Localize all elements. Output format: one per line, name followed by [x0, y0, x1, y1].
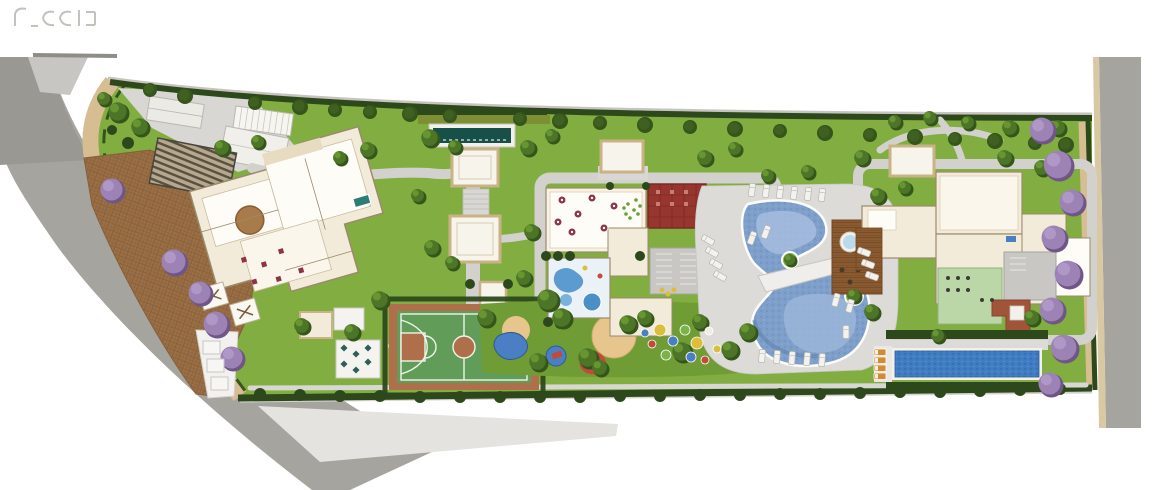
lounger: [803, 352, 810, 365]
tree-highlight: [802, 166, 808, 172]
shrub: [854, 387, 866, 399]
pergola-3: [601, 141, 643, 172]
tree-highlight: [449, 141, 455, 147]
tree-highlight: [872, 189, 879, 196]
tree-highlight: [639, 311, 646, 318]
tree-highlight: [423, 130, 431, 138]
boundary-tree: [684, 121, 694, 131]
chair-dot: [622, 206, 626, 210]
shrub: [654, 390, 666, 402]
round-table: [577, 213, 579, 215]
boundary-tree: [864, 129, 874, 139]
tree-highlight: [426, 241, 433, 248]
tree-highlight: [373, 292, 381, 300]
boundary-tree: [364, 106, 374, 116]
boundary-tree: [553, 114, 564, 125]
pergola-5: [480, 282, 506, 306]
shrub: [814, 388, 826, 400]
boundary-tree: [949, 133, 959, 143]
play-element: [654, 324, 666, 336]
shrub: [254, 388, 266, 400]
tree-highlight: [621, 316, 629, 324]
boundary-tree: [638, 118, 649, 129]
tree-highlight: [479, 310, 487, 318]
tree-highlight: [216, 141, 223, 148]
boundary-tree: [514, 113, 524, 123]
tree-highlight: [334, 152, 340, 158]
tree-highlight: [446, 257, 452, 263]
shrub: [294, 389, 306, 401]
shrub: [465, 279, 475, 289]
tree-highlight: [526, 225, 533, 232]
lounger: [818, 353, 825, 366]
tree-highlight: [522, 141, 529, 148]
shrub: [374, 390, 386, 402]
shrub: [774, 388, 786, 400]
parking-bay: [207, 359, 224, 372]
round-table: [603, 227, 605, 229]
play-element: [686, 352, 696, 362]
boundary-tree: [988, 134, 999, 145]
shrub: [974, 385, 986, 397]
service-block: [1004, 252, 1056, 300]
play-element: [648, 340, 656, 348]
purple-tree-highlight: [164, 252, 176, 264]
boundary-tree: [403, 107, 414, 118]
tree-highlight: [899, 182, 905, 188]
chair-dot: [638, 204, 642, 208]
lounger: [773, 350, 780, 363]
shrub: [503, 279, 513, 289]
chair-dot: [626, 202, 630, 206]
round-table: [561, 199, 563, 201]
street-sidewalk: [258, 406, 618, 462]
boundary-tree: [444, 110, 454, 120]
tree-highlight: [110, 104, 119, 113]
chair-dot: [636, 212, 640, 216]
purple-tree-highlight: [1058, 263, 1071, 276]
tree-highlight: [98, 93, 104, 99]
lap-pool: [895, 351, 1039, 377]
parking-bay: [211, 377, 228, 390]
purple-tree-highlight: [103, 180, 114, 191]
shrub: [694, 389, 706, 401]
tree-highlight: [785, 255, 790, 260]
tree-highlight: [133, 119, 141, 127]
boundary-tree: [908, 130, 919, 141]
gym-equipment-dot: [990, 298, 994, 302]
play-element: [641, 329, 649, 337]
shrub: [454, 391, 466, 403]
round-table: [613, 205, 615, 207]
chair-dot: [634, 198, 638, 202]
shrub: [565, 251, 575, 261]
purple-tree-highlight: [1047, 153, 1061, 167]
shrub: [614, 390, 626, 402]
logo-watermark: [15, 9, 95, 26]
chair-dot: [632, 208, 636, 212]
site-plan-rendering: [0, 0, 1154, 490]
orange-lounger-pad: [875, 358, 878, 363]
tree-highlight: [412, 190, 418, 196]
shrub: [1014, 384, 1026, 396]
boundary-tree: [178, 89, 189, 100]
tree-highlight: [1026, 311, 1033, 318]
tree-highlight: [362, 143, 369, 150]
tree-highlight: [252, 136, 258, 142]
lounger: [758, 349, 765, 362]
tree-highlight: [848, 290, 854, 296]
shrub: [642, 182, 650, 190]
shrub: [107, 125, 117, 135]
orange-lounger-pad: [875, 366, 878, 371]
play-pond: [494, 332, 528, 359]
round-table: [591, 197, 593, 199]
tree-highlight: [762, 170, 768, 176]
pool-shallow-band-2: [784, 294, 856, 353]
boundary-tree: [293, 100, 304, 111]
tree-highlight: [539, 291, 549, 301]
tree-highlight: [741, 324, 749, 332]
orange-lounger-pad: [875, 374, 878, 379]
site-plan-canvas: [0, 0, 1154, 490]
water-fixture: [1006, 236, 1016, 242]
play-element: [661, 350, 671, 360]
tree-highlight: [999, 151, 1006, 158]
tree-highlight: [546, 130, 552, 136]
tree-highlight: [554, 310, 563, 319]
purple-tree-highlight: [1042, 300, 1054, 312]
shrub: [574, 391, 586, 403]
purple-tree-highlight: [1041, 374, 1052, 385]
boundary-tree: [144, 84, 154, 94]
purple-tree-highlight: [1044, 228, 1056, 240]
purple-tree-highlight: [1032, 120, 1044, 132]
tree-highlight: [866, 305, 873, 312]
gym-equipment-dot: [966, 288, 970, 292]
stairs: [463, 189, 489, 215]
tree-highlight: [699, 151, 706, 158]
purple-tree-highlight: [1062, 192, 1074, 204]
gym-equipment-dot: [946, 288, 950, 292]
tree-highlight: [924, 112, 930, 118]
purple-tree-highlight: [206, 314, 218, 326]
tree-highlight: [518, 271, 525, 278]
chair-dot: [624, 212, 628, 216]
pergola-4: [890, 146, 934, 176]
shrub: [894, 386, 906, 398]
boundary-tree: [249, 97, 259, 107]
boundary-tree: [594, 117, 604, 127]
round-table: [571, 231, 573, 233]
play-element: [668, 336, 678, 346]
tree-highlight: [962, 117, 968, 123]
tree-highlight: [346, 325, 353, 332]
tree-highlight: [580, 350, 589, 359]
tree-highlight: [932, 330, 938, 336]
right-street: [1093, 57, 1141, 428]
tree-highlight: [729, 143, 735, 149]
play-element: [701, 356, 709, 364]
shrub: [934, 386, 946, 398]
play-element: [705, 327, 713, 335]
round-table: [557, 221, 559, 223]
gym-equipment-dot: [980, 298, 984, 302]
boundary-tree: [818, 126, 829, 137]
boundary-tree: [774, 125, 784, 135]
play-element: [680, 325, 690, 335]
shrub: [534, 391, 546, 403]
play-element: [713, 345, 721, 353]
shrub: [553, 251, 563, 261]
shrub: [543, 317, 553, 327]
lounger: [843, 326, 849, 339]
tree-highlight: [723, 342, 731, 350]
boundary-tree: [728, 122, 739, 133]
stair-core: [650, 248, 702, 294]
gym-equipment-dot: [966, 276, 970, 280]
tree-highlight: [694, 315, 701, 322]
shrub: [635, 251, 645, 261]
purple-tree-highlight: [1054, 337, 1067, 350]
boundary-tree: [329, 104, 339, 114]
parking-bay: [203, 341, 220, 354]
gym-equipment-dot: [946, 276, 950, 280]
orange-lounger-pad: [875, 350, 878, 355]
shrub: [606, 182, 614, 190]
shrub: [734, 389, 746, 401]
pergola-2: [450, 216, 500, 262]
tree-highlight: [594, 361, 601, 368]
purple-tree-highlight: [191, 283, 202, 294]
gym-equipment-dot: [956, 276, 960, 280]
shrub: [494, 391, 506, 403]
gym-equipment-dot: [956, 288, 960, 292]
tree-highlight: [889, 116, 895, 122]
shrub: [122, 137, 134, 149]
tree-highlight: [1036, 161, 1043, 168]
play-element: [691, 337, 703, 349]
shrub: [541, 251, 551, 261]
shrub: [334, 390, 346, 402]
shrub: [414, 391, 426, 403]
chair-dot: [628, 216, 632, 220]
tree-highlight: [1004, 121, 1011, 128]
purple-tree-highlight: [223, 348, 234, 359]
tree-highlight: [296, 319, 303, 326]
tree-highlight: [856, 151, 863, 158]
lounger: [788, 351, 795, 364]
tree-highlight: [531, 354, 539, 362]
boundary-tree: [1059, 138, 1070, 149]
